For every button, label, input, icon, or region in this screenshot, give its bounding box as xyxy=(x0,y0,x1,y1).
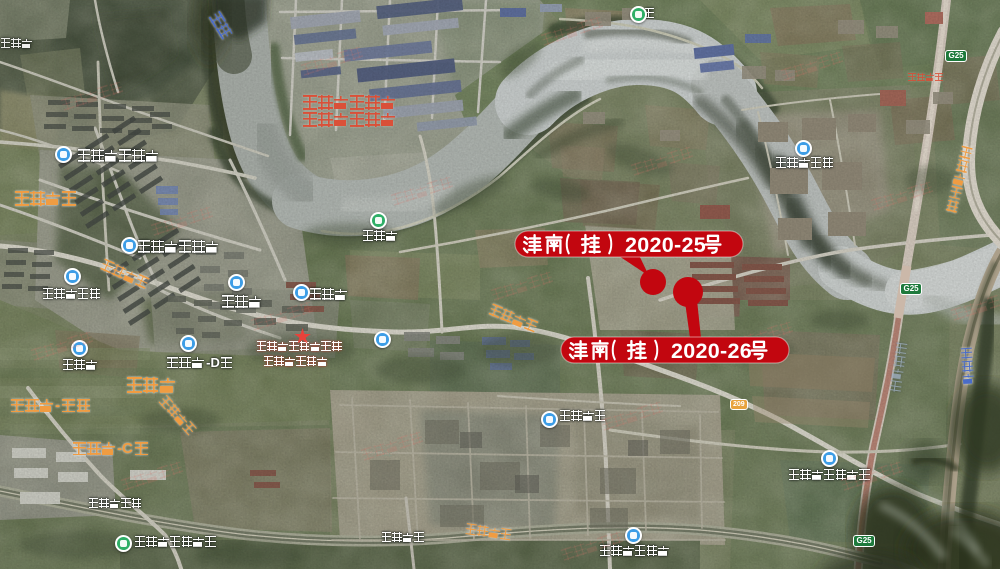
svg-text:2020-25: 2020-25 xyxy=(625,233,706,257)
svg-text:2020-26: 2020-26 xyxy=(671,339,752,363)
